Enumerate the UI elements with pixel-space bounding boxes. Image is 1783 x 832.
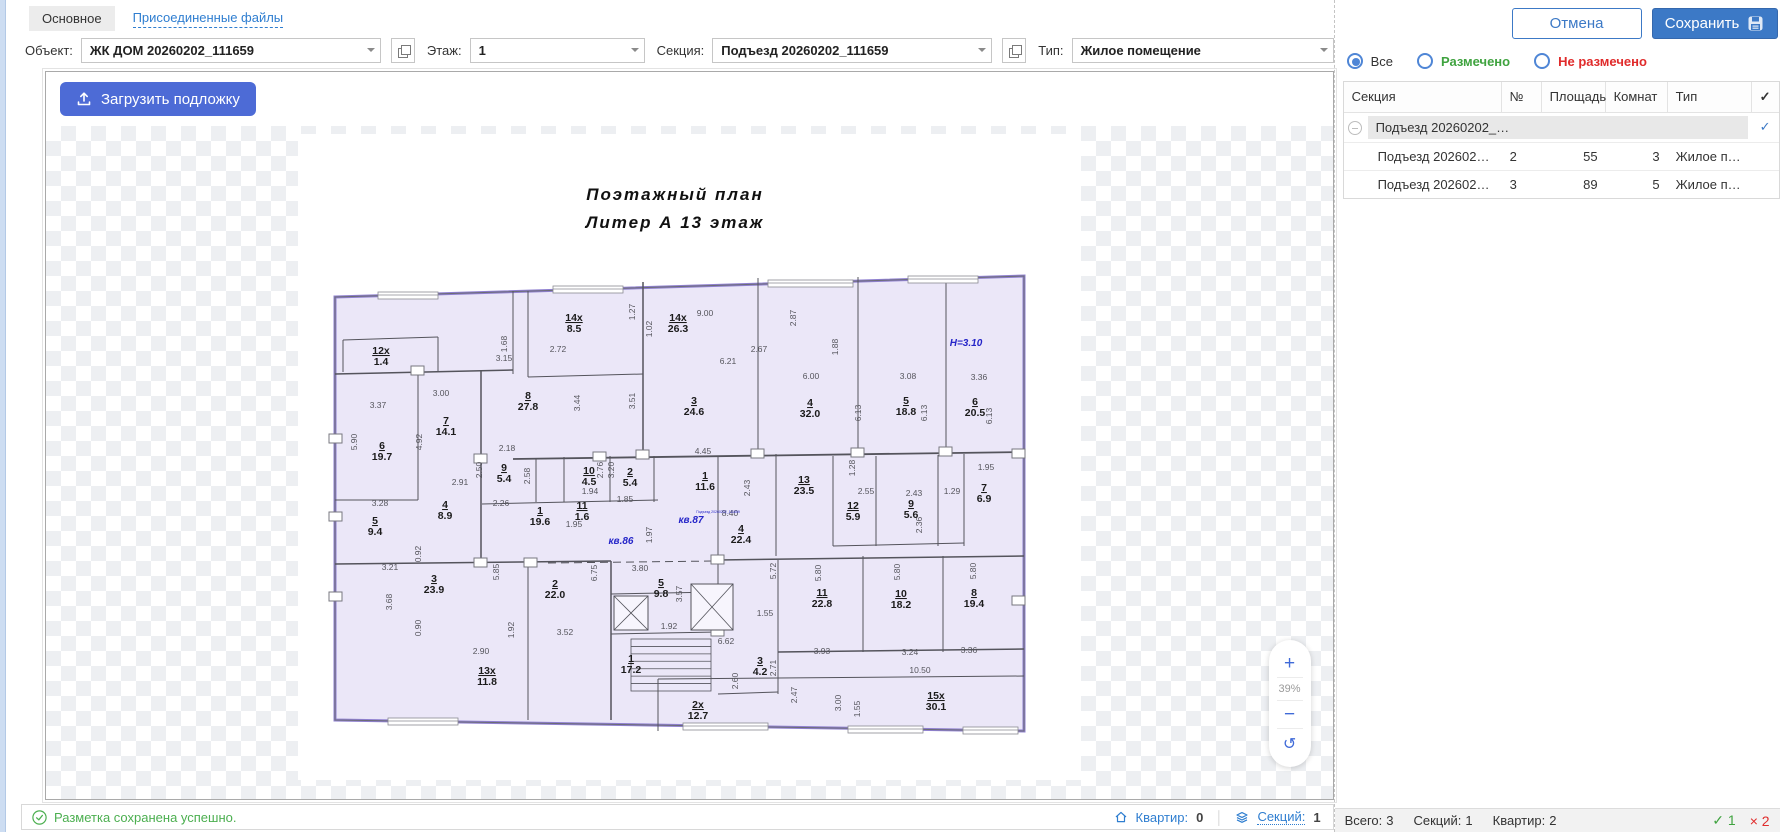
- svg-text:27.8: 27.8: [518, 401, 539, 413]
- svg-text:Поэтажный план: Поэтажный план: [586, 185, 763, 204]
- object-value: ЖК ДОМ 20260202_111659: [82, 43, 362, 58]
- svg-text:5.4: 5.4: [496, 473, 511, 485]
- svg-text:22.4: 22.4: [731, 534, 752, 546]
- type-label: Тип:: [1038, 43, 1063, 58]
- upload-underlay-label: Загрузить подложку: [101, 91, 240, 108]
- section-value: Подъезд 20260202_111659: [713, 43, 973, 58]
- cell: [1752, 171, 1779, 198]
- svg-text:1.02: 1.02: [644, 320, 654, 337]
- svg-text:3.00: 3.00: [433, 388, 450, 398]
- zoom-out-button[interactable]: −: [1284, 701, 1295, 728]
- svg-text:22.8: 22.8: [812, 598, 833, 610]
- object-label: Объект:: [25, 43, 73, 58]
- svg-text:6.13: 6.13: [984, 407, 994, 424]
- svg-text:32.0: 32.0: [800, 408, 821, 420]
- fail-count: × 2: [1750, 813, 1770, 829]
- canvas-toolbar: Загрузить подложку: [46, 72, 1333, 126]
- svg-text:4.92: 4.92: [414, 433, 424, 450]
- svg-text:18.2: 18.2: [891, 599, 912, 611]
- svg-text:2.47: 2.47: [789, 686, 799, 703]
- svg-text:2.26: 2.26: [493, 498, 510, 508]
- zoom-in-button[interactable]: +: [1284, 650, 1295, 677]
- svg-text:2.91: 2.91: [452, 477, 469, 487]
- svg-text:9.8: 9.8: [653, 588, 668, 600]
- success-check-icon: [32, 810, 47, 825]
- chevron-down-icon[interactable]: [1315, 39, 1333, 62]
- svg-text:2.67: 2.67: [751, 344, 768, 354]
- upload-underlay-button[interactable]: Загрузить подложку: [60, 82, 256, 116]
- svg-text:6.75: 6.75: [589, 564, 599, 581]
- action-buttons: Отмена Сохранить: [1343, 6, 1780, 49]
- cell: 89: [1542, 171, 1606, 198]
- svg-text:22.0: 22.0: [545, 589, 566, 601]
- chevron-down-icon[interactable]: [362, 39, 380, 62]
- section-select[interactable]: Подъезд 20260202_111659: [712, 38, 992, 63]
- check-all-icon[interactable]: ✓: [1752, 82, 1779, 113]
- sections-count: 1: [1313, 810, 1320, 825]
- svg-text:1.4: 1.4: [373, 356, 388, 368]
- chevron-down-icon[interactable]: [626, 39, 644, 62]
- svg-text:18.8: 18.8: [896, 406, 917, 418]
- svg-text:8.5: 8.5: [566, 323, 581, 335]
- main-area: Основное Присоединенные файлы Объект: ЖК…: [7, 0, 1334, 832]
- group-checked-icon[interactable]: ✓: [1752, 113, 1779, 143]
- svg-text:Литер А 13 этаж: Литер А 13 этаж: [583, 213, 764, 232]
- save-button-label: Сохранить: [1665, 15, 1740, 32]
- svg-text:5.80: 5.80: [968, 562, 978, 579]
- svg-text:5.4: 5.4: [622, 477, 637, 489]
- section-label: Секция:: [657, 43, 705, 58]
- group-section-name: Подъезд 20260202_…: [1368, 116, 1748, 139]
- svg-text:2.60: 2.60: [730, 672, 740, 689]
- panel-footer: Всего:3 Секций:1 Квартир:2 ✓ 1 × 2: [1335, 808, 1780, 832]
- cell: 2: [1502, 143, 1542, 171]
- svg-text:3.57: 3.57: [674, 585, 684, 602]
- cell: 55: [1542, 143, 1606, 171]
- svg-text:5.72: 5.72: [768, 562, 778, 579]
- cell: Подъезд 202602…: [1344, 171, 1502, 198]
- svg-text:2.87: 2.87: [788, 309, 798, 326]
- svg-text:3.44: 3.44: [572, 394, 582, 411]
- svg-text:1.55: 1.55: [852, 700, 862, 717]
- checker-background: 12x1.4619.7714.1827.814x8.514x26.395.410…: [46, 126, 1333, 799]
- radio-all-icon[interactable]: [1347, 53, 1363, 69]
- svg-text:1.27: 1.27: [627, 303, 637, 320]
- filter-marked[interactable]: Размечено: [1417, 53, 1510, 69]
- table-rows: Подъезд 202602…2553Жилое п…Подъезд 20260…: [1344, 143, 1779, 198]
- svg-text:0.90: 0.90: [413, 619, 423, 636]
- save-button[interactable]: Сохранить: [1652, 8, 1778, 39]
- col-type[interactable]: Тип: [1668, 82, 1752, 113]
- svg-text:23.9: 23.9: [424, 584, 445, 596]
- svg-text:3.37: 3.37: [370, 400, 387, 410]
- side-panel: Отмена Сохранить Все Размечено: [1334, 0, 1783, 832]
- tab-bar: Основное Присоединенные файлы: [21, 4, 1334, 32]
- floor-label: Этаж:: [427, 43, 462, 58]
- svg-text:26.3: 26.3: [668, 323, 689, 335]
- svg-text:кв.86: кв.86: [608, 536, 633, 547]
- svg-text:1.92: 1.92: [661, 621, 678, 631]
- svg-text:3.68: 3.68: [384, 593, 394, 610]
- cell: 3: [1502, 171, 1542, 198]
- zoom-level: 39%: [1279, 678, 1301, 700]
- svg-text:19.6: 19.6: [530, 516, 551, 528]
- svg-text:3.24: 3.24: [902, 647, 919, 657]
- radio-marked-icon[interactable]: [1417, 53, 1433, 69]
- svg-text:2.55: 2.55: [858, 486, 875, 496]
- layers-icon: [1235, 810, 1249, 824]
- svg-text:1.28: 1.28: [847, 459, 857, 476]
- tab-attached-files[interactable]: Присоединенные файлы: [133, 8, 284, 28]
- svg-text:3.20: 3.20: [606, 461, 616, 478]
- col-number[interactable]: №: [1502, 82, 1542, 113]
- zoom-controls: + 39% − ↺: [1269, 640, 1311, 767]
- svg-text:H=3.10: H=3.10: [950, 338, 983, 349]
- svg-text:19.7: 19.7: [372, 451, 393, 463]
- open-section-icon[interactable]: [1002, 38, 1026, 63]
- svg-text:кв.87: кв.87: [678, 515, 703, 526]
- table-group-row[interactable]: Подъезд 20260202_… ✓: [1344, 113, 1779, 143]
- svg-text:3.80: 3.80: [632, 563, 649, 573]
- svg-text:1.97: 1.97: [644, 526, 654, 543]
- svg-text:0.92: 0.92: [413, 545, 423, 562]
- upload-icon: [76, 91, 92, 107]
- ok-count: ✓ 1: [1712, 812, 1735, 829]
- filter-all[interactable]: Все: [1347, 53, 1393, 69]
- svg-text:6.13: 6.13: [853, 404, 863, 421]
- chevron-down-icon[interactable]: [973, 39, 991, 62]
- svg-text:6.21: 6.21: [720, 356, 737, 366]
- type-select[interactable]: Жилое помещение: [1072, 38, 1334, 63]
- floor-plan-paper[interactable]: 12x1.4619.7714.1827.814x8.514x26.395.410…: [298, 134, 1081, 780]
- cell: 3: [1606, 143, 1668, 171]
- col-area[interactable]: Площадь: [1542, 82, 1606, 113]
- svg-text:3.36: 3.36: [961, 645, 978, 655]
- svg-text:2.58: 2.58: [522, 467, 532, 484]
- svg-text:6.00: 6.00: [803, 371, 820, 381]
- table-row[interactable]: Подъезд 202602…3895Жилое п…: [1344, 171, 1779, 198]
- sections-label[interactable]: Секций:: [1257, 809, 1305, 825]
- svg-text:2.43: 2.43: [742, 479, 752, 496]
- svg-text:1.85: 1.85: [617, 494, 634, 504]
- home-icon: [1114, 810, 1128, 824]
- sections-table: Секция № Площадь Комнат Тип ✓ Подъезд 20…: [1343, 81, 1780, 199]
- table-header: Секция № Площадь Комнат Тип ✓: [1344, 82, 1779, 113]
- svg-text:3.28: 3.28: [372, 498, 389, 508]
- svg-text:3.21: 3.21: [382, 562, 399, 572]
- svg-text:3.51: 3.51: [627, 392, 637, 409]
- svg-text:9.00: 9.00: [697, 308, 714, 318]
- svg-text:19.4: 19.4: [964, 598, 985, 610]
- svg-text:11.6: 11.6: [695, 481, 715, 493]
- cancel-button[interactable]: Отмена: [1512, 8, 1642, 39]
- divider: │: [1215, 810, 1223, 825]
- filter-marked-label: Размечено: [1441, 54, 1510, 69]
- table-row[interactable]: Подъезд 202602…2553Жилое п…: [1344, 143, 1779, 171]
- filter-all-label: Все: [1371, 54, 1393, 69]
- app-window: Основное Присоединенные файлы Объект: ЖК…: [7, 0, 1783, 832]
- plan-canvas: Загрузить подложку 12x1.4619.7714.1827.8…: [45, 71, 1334, 800]
- svg-text:2.50: 2.50: [474, 461, 484, 478]
- floor-value: 1: [471, 43, 626, 58]
- svg-text:3.52: 3.52: [557, 627, 574, 637]
- counters: Квартир: 0 │ Секций: 1: [1114, 809, 1321, 825]
- type-value: Жилое помещение: [1073, 43, 1315, 58]
- apartments-label: Квартир:: [1136, 810, 1189, 825]
- status-message: Разметка сохранена успешно.: [54, 810, 236, 825]
- svg-text:6.13: 6.13: [919, 404, 929, 421]
- total-counter: Всего:3: [1345, 813, 1394, 828]
- col-section[interactable]: Секция: [1344, 82, 1502, 113]
- svg-text:4.2: 4.2: [752, 666, 767, 678]
- svg-text:5.90: 5.90: [349, 433, 359, 450]
- svg-text:14.1: 14.1: [436, 426, 457, 438]
- object-select[interactable]: ЖК ДОМ 20260202_111659: [81, 38, 381, 63]
- svg-text:24.6: 24.6: [684, 406, 705, 418]
- svg-text:3.36: 3.36: [971, 372, 988, 382]
- filter-unmarked[interactable]: Не размечено: [1534, 53, 1647, 69]
- svg-text:Подъезд 20260202_111659: Подъезд 20260202_111659: [696, 510, 740, 514]
- svg-text:3.15: 3.15: [496, 353, 513, 363]
- svg-text:1.68: 1.68: [499, 335, 509, 352]
- save-floppy-icon: [1747, 15, 1764, 32]
- svg-text:1.92: 1.92: [506, 621, 516, 638]
- apartments-counter: Квартир:2: [1493, 813, 1557, 828]
- cell: Жилое п…: [1668, 171, 1752, 198]
- tab-main[interactable]: Основное: [29, 6, 115, 31]
- col-rooms[interactable]: Комнат: [1606, 82, 1668, 113]
- svg-text:1.94: 1.94: [582, 486, 599, 496]
- svg-text:10.50: 10.50: [909, 665, 931, 675]
- svg-text:9.4: 9.4: [367, 526, 382, 538]
- floor-plan-svg: 12x1.4619.7714.1827.814x8.514x26.395.410…: [298, 134, 1081, 780]
- svg-text:1.29: 1.29: [944, 486, 961, 496]
- svg-text:8.9: 8.9: [437, 510, 452, 522]
- svg-text:2.72: 2.72: [550, 344, 567, 354]
- svg-text:5.80: 5.80: [813, 564, 823, 581]
- svg-text:2.18: 2.18: [499, 443, 516, 453]
- svg-text:1.95: 1.95: [566, 519, 583, 529]
- svg-text:1.88: 1.88: [830, 338, 840, 355]
- floor-select[interactable]: 1: [470, 38, 645, 63]
- svg-text:3.00: 3.00: [833, 694, 843, 711]
- svg-text:30.1: 30.1: [926, 701, 947, 713]
- radio-unmarked-icon[interactable]: [1534, 53, 1550, 69]
- svg-text:12.7: 12.7: [688, 710, 709, 722]
- svg-text:23.5: 23.5: [794, 485, 815, 497]
- svg-text:2.71: 2.71: [768, 659, 778, 676]
- left-scroll-strip[interactable]: [0, 0, 6, 832]
- svg-text:2.36: 2.36: [914, 516, 924, 533]
- cell: Подъезд 202602…: [1344, 143, 1502, 171]
- svg-text:20.5: 20.5: [965, 407, 986, 419]
- svg-text:1.95: 1.95: [978, 462, 995, 472]
- svg-text:6.9: 6.9: [976, 493, 991, 505]
- zoom-reset-button[interactable]: ↺: [1283, 729, 1296, 757]
- svg-text:3.08: 3.08: [900, 371, 917, 381]
- svg-text:2.90: 2.90: [473, 646, 490, 656]
- svg-text:2.76: 2.76: [595, 461, 605, 478]
- filter-unmarked-label: Не размечено: [1558, 54, 1647, 69]
- svg-text:4.45: 4.45: [695, 446, 712, 456]
- cell: [1752, 143, 1779, 171]
- filter-radio-group: Все Размечено Не размечено: [1343, 49, 1780, 81]
- sections-counter: Секций:1: [1414, 813, 1473, 828]
- svg-text:11.8: 11.8: [477, 676, 497, 688]
- svg-text:17.2: 17.2: [621, 664, 642, 676]
- cell: Жилое п…: [1668, 143, 1752, 171]
- svg-text:6.62: 6.62: [718, 636, 735, 646]
- object-toolbar: Объект: ЖК ДОМ 20260202_111659 Этаж: 1 С…: [21, 32, 1334, 68]
- apartments-count: 0: [1196, 810, 1203, 825]
- svg-text:2.43: 2.43: [906, 488, 923, 498]
- svg-text:3.93: 3.93: [814, 646, 831, 656]
- svg-text:5.9: 5.9: [845, 511, 860, 523]
- collapse-icon[interactable]: [1348, 121, 1362, 135]
- open-object-icon[interactable]: [391, 38, 415, 63]
- status-bar: Разметка сохранена успешно. Квартир: 0 │…: [21, 804, 1334, 830]
- svg-text:5.85: 5.85: [491, 563, 501, 580]
- cell: 5: [1606, 171, 1668, 198]
- svg-text:5.80: 5.80: [892, 563, 902, 580]
- svg-text:1.55: 1.55: [757, 608, 774, 618]
